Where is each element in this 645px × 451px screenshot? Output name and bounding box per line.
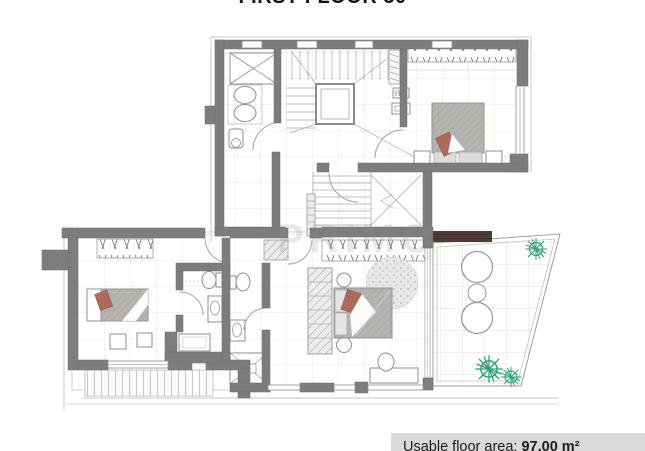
area-label: Usable floor area:: [403, 439, 517, 451]
wardrobe: [97, 239, 153, 258]
window: [334, 385, 355, 390]
mirror: [378, 353, 394, 371]
shower-tray: [179, 334, 210, 351]
stool: [110, 334, 126, 349]
window: [242, 41, 262, 48]
toilet-tank: [216, 273, 222, 287]
floor-plan-page: FIRST FLOOR 30: [0, 0, 645, 451]
pillow: [335, 313, 347, 335]
plant-icon: [501, 367, 521, 387]
sink-counter: [208, 296, 222, 322]
side-table: [468, 284, 486, 302]
sink: [234, 105, 256, 122]
toilet: [236, 273, 250, 291]
window: [355, 41, 373, 48]
toilet-tank: [230, 276, 236, 289]
dresser: [370, 368, 418, 383]
toilet: [202, 272, 216, 289]
closet-column: [308, 268, 332, 354]
round-chair: [462, 303, 493, 334]
shelf-strip: [389, 50, 400, 84]
terrace-floor: [433, 234, 560, 386]
stairwell-opening: [316, 84, 354, 124]
plant-icon: [525, 238, 547, 260]
pergola-band: [433, 231, 492, 242]
wardrobe: [408, 48, 516, 62]
window: [368, 385, 423, 390]
area-value: 97,00 m²: [521, 439, 579, 451]
round-chair: [462, 252, 493, 283]
window: [432, 41, 452, 48]
stool: [137, 333, 152, 347]
window: [297, 41, 317, 48]
window: [268, 385, 300, 390]
nightstand: [337, 273, 351, 287]
plant-icon: [475, 355, 503, 383]
area-panel: Usable floor area: 97,00 m²: [391, 433, 645, 451]
floor-plan-drawing: PRIMO: [0, 0, 645, 451]
nightstand: [337, 338, 352, 353]
watermark: PRIMO: [277, 217, 438, 261]
sink: [234, 87, 256, 104]
